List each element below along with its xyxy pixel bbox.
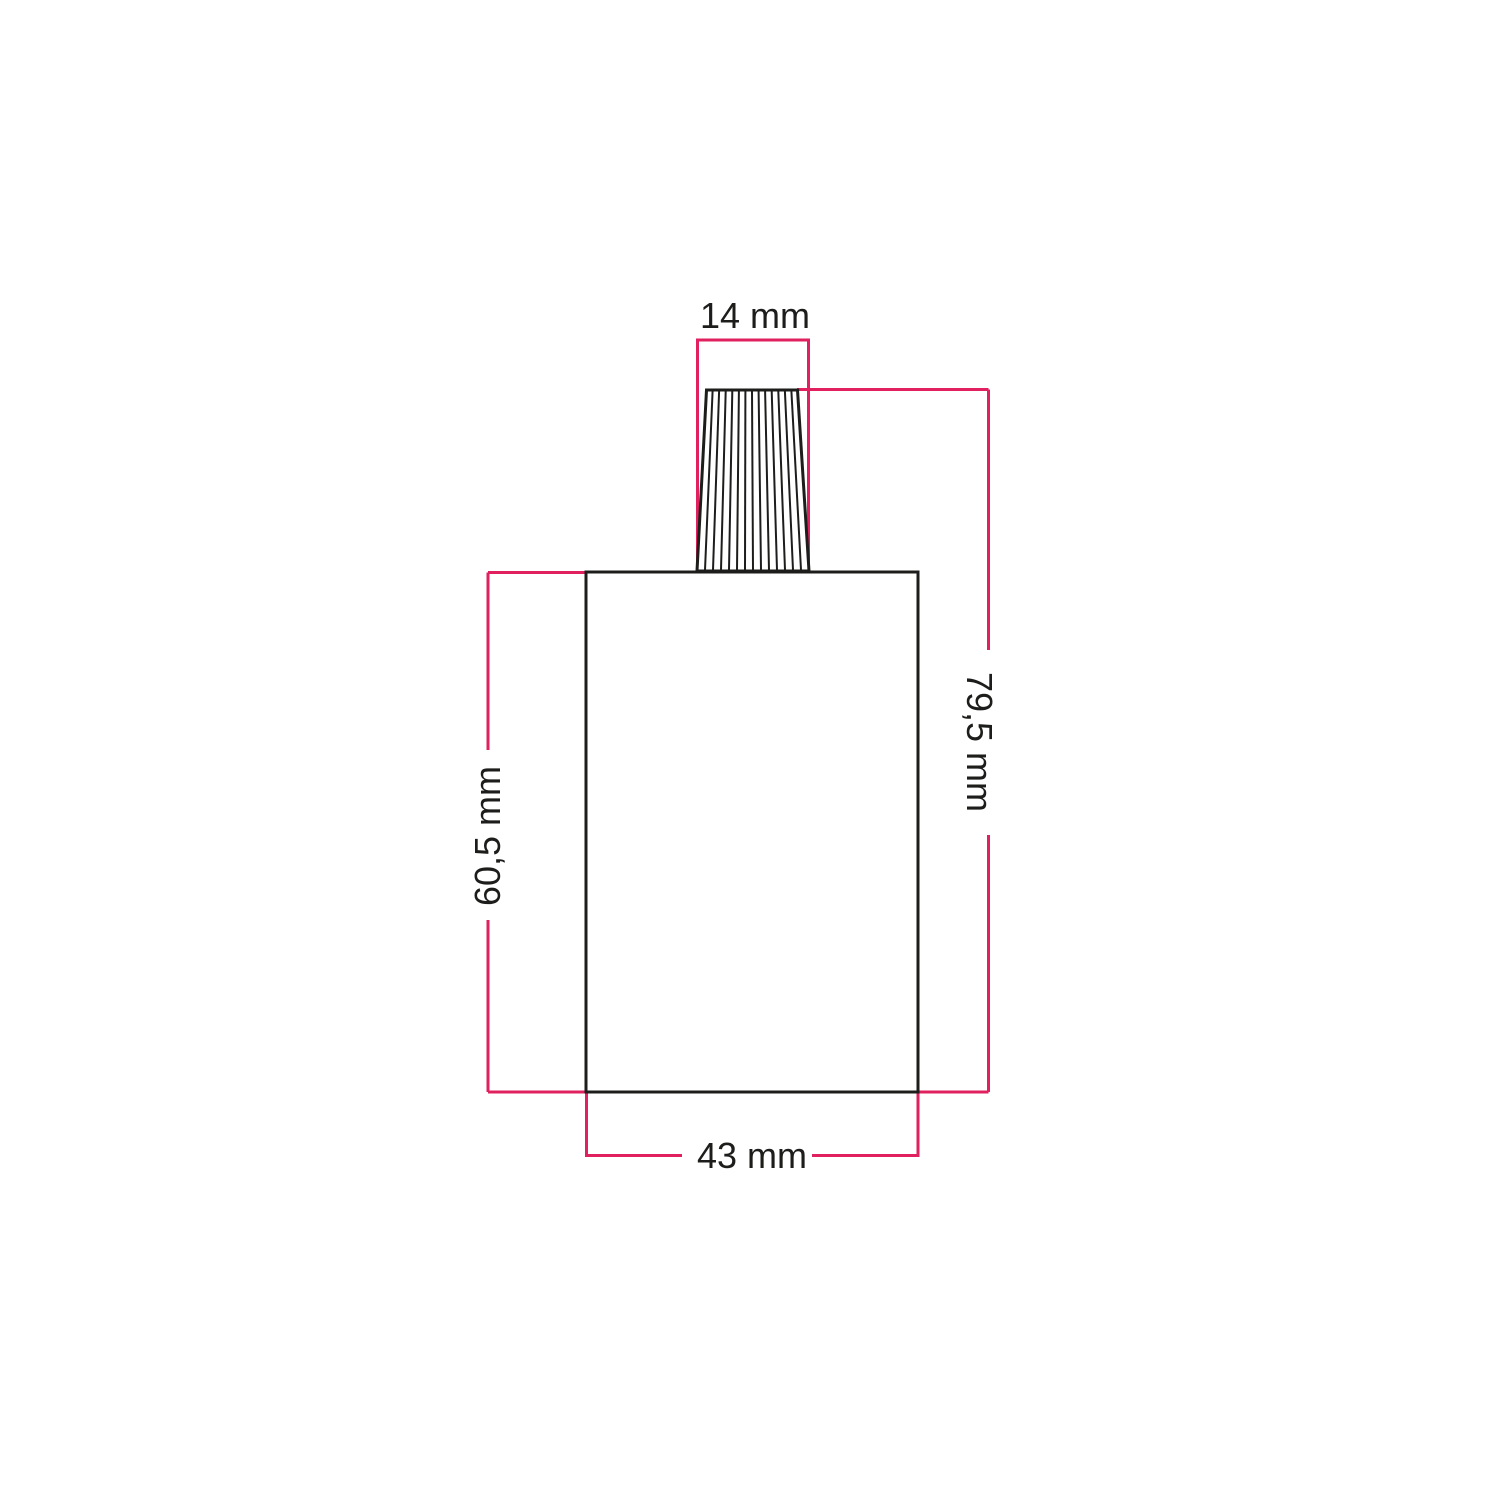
rib-line (752, 391, 753, 570)
dim-label-body-height: 60,5 mm (470, 766, 506, 906)
dim-label-total-height: 79,5 mm (961, 672, 997, 812)
dimension-diagram-canvas: 14 mm 79,5 mm 60,5 mm 43 mm (0, 0, 1500, 1500)
holder-body-outline (586, 572, 918, 1092)
dimension-drawing (0, 0, 1500, 1500)
dim-bracket-body-width-left (587, 1092, 683, 1156)
cable-gland-group (697, 390, 809, 571)
dim-label-gland-width: 14 mm (700, 298, 810, 334)
dim-bracket-body-width-right (812, 1092, 918, 1156)
dim-label-body-width: 43 mm (697, 1138, 807, 1174)
